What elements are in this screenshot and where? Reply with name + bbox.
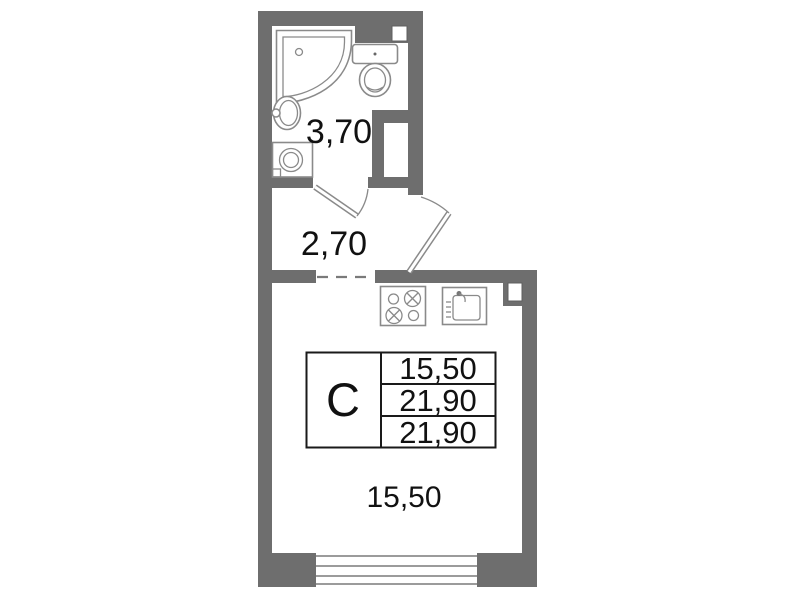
bathroom-bottom-wall-left [272, 177, 313, 188]
entrance-door-icon [409, 197, 449, 272]
toilet-icon [353, 45, 398, 97]
hallway-bottom-stub [258, 270, 316, 283]
main-room-top-wall [375, 270, 537, 283]
stove-icon [381, 287, 426, 326]
bathroom-door-icon [315, 187, 368, 216]
wall-right-upper [408, 11, 423, 195]
main-room-area-label: 15,50 [366, 481, 441, 514]
kitchen-sink-icon [443, 288, 487, 325]
bathroom-area-label: 3,70 [306, 113, 372, 151]
vent-shaft-icon [392, 26, 407, 41]
apartment-type-label: C [326, 373, 360, 426]
shaft-left-bar [372, 110, 384, 188]
apartment-info-table: C 15,50 21,90 21,90 [307, 351, 496, 450]
window-icon [316, 556, 477, 584]
floor-plan-drawing: C 15,50 21,90 21,90 3,70 2,70 15,50 [0, 0, 799, 600]
hallway-area-label: 2,70 [301, 225, 367, 263]
wall-right-main [522, 270, 537, 587]
table-value-total-area-2: 21,90 [399, 415, 477, 450]
wall-top [258, 11, 423, 26]
bottom-wall-left-block [258, 553, 316, 587]
table-value-total-area: 21,90 [399, 383, 477, 418]
corner-shaft-icon [508, 283, 522, 301]
wall-left [258, 11, 272, 587]
bottom-wall-right-block [477, 553, 537, 587]
shower-icon [277, 31, 352, 104]
table-value-living-area: 15,50 [399, 351, 477, 386]
bathroom-bottom-wall-right [368, 177, 423, 188]
floor-plan: C 15,50 21,90 21,90 3,70 2,70 15,50 [0, 0, 799, 600]
